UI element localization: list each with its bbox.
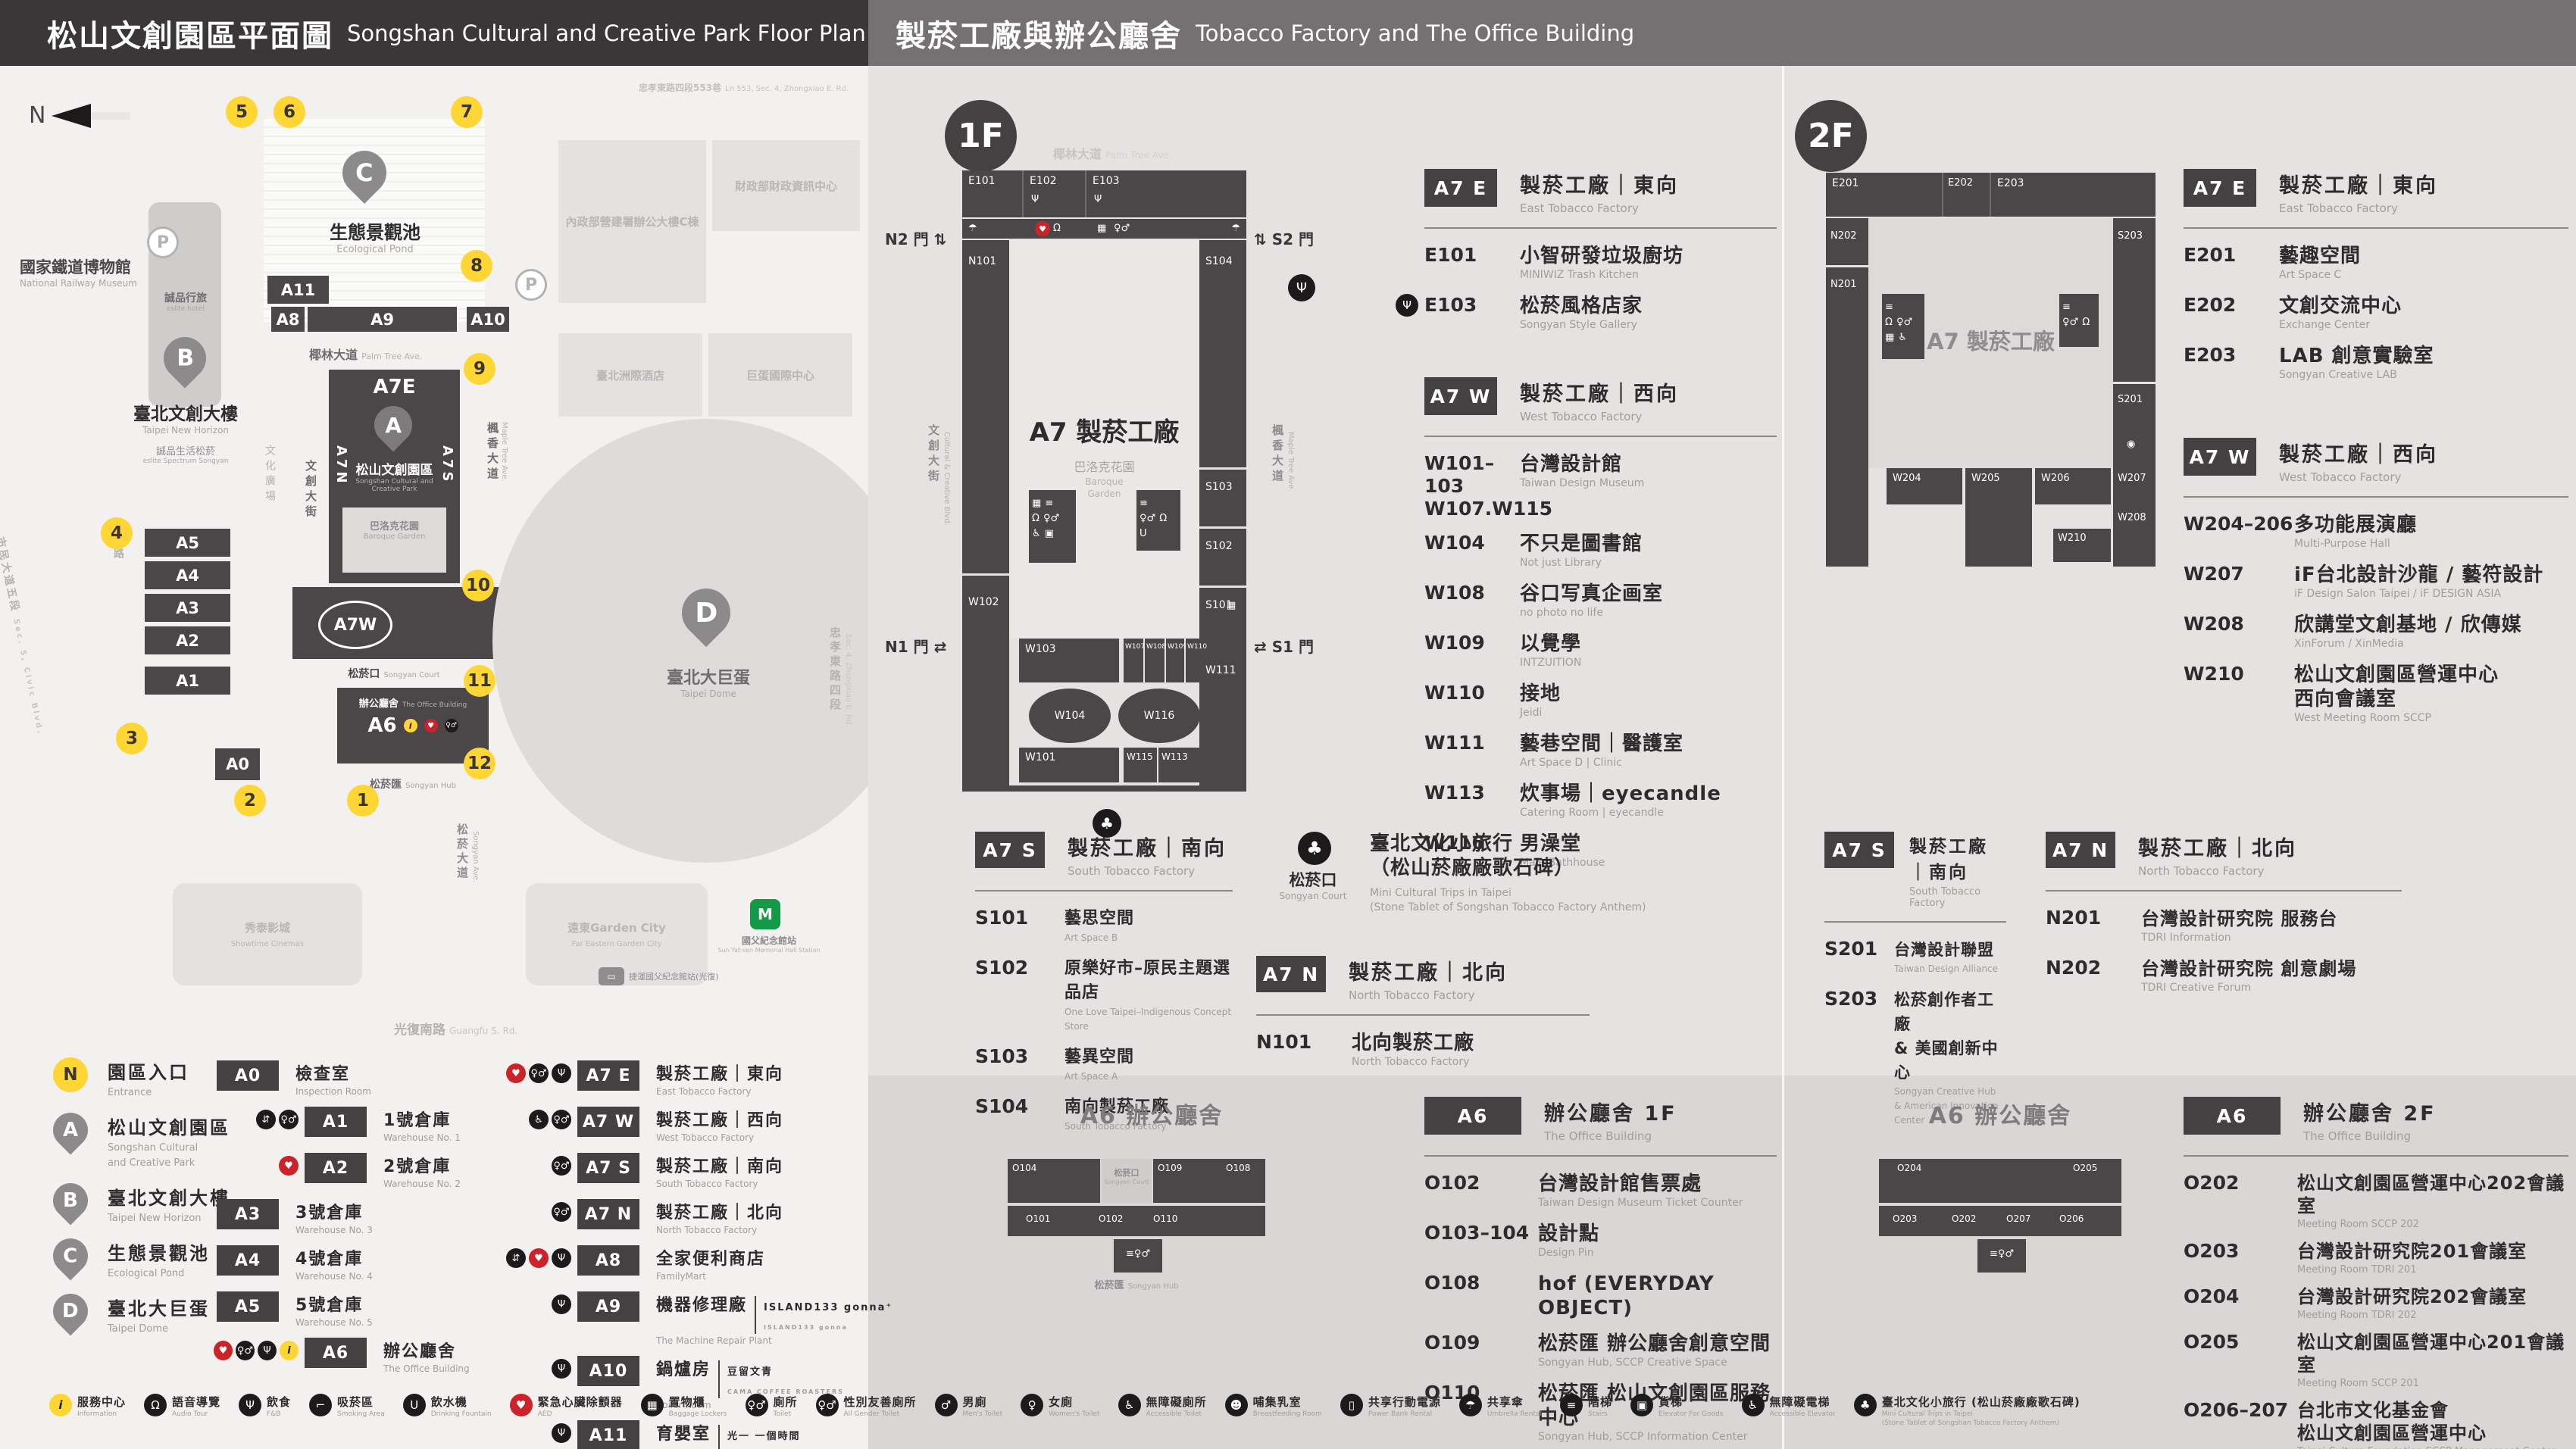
maple-ave-zh: 楓香大道 (486, 422, 499, 482)
room-separator (962, 573, 1009, 576)
room-w108-label: W108 (1146, 643, 1166, 651)
legend-pin-zh: 生態景觀池 (108, 1238, 210, 1265)
garden-city-en: Far Eastern Garden City (572, 940, 662, 948)
map-pin-icon: B (45, 1176, 95, 1225)
taipei-dome-shape (492, 419, 868, 863)
gate-1-label: 1 (357, 791, 369, 810)
plan1-maple-zh: 楓香大道 (1271, 424, 1284, 485)
elevator-icon: ⇵ (506, 1248, 526, 1268)
plan1-corridor: ☂ ♥ Ω ▦ ♀♂ ☂ (962, 219, 1246, 239)
footer-item-en2: (Stone Tablet of Songshan Tobacco Factor… (1882, 1419, 2080, 1428)
row-en: Songyan Creative LAB (2279, 368, 2568, 383)
row-name: 藝思空間 Art Space B (1064, 907, 1233, 945)
row-name: 北向製菸工廠 North Tobacco Factory (1352, 1031, 1680, 1070)
new-horizon-en: Taipei New Horizon (98, 425, 273, 436)
row-code: O102 (1424, 1172, 1538, 1210)
row-zh: 藝異空間 (1064, 1045, 1233, 1070)
legend-en: FamilyMart (656, 1271, 765, 1282)
directory-row: W104 不只是圖書館 Not just Library (1424, 532, 1777, 570)
dir-1f-north: A7 N 製菸工廠｜北向 North Tobacco Factory N101 … (1256, 956, 1680, 1081)
legend-pin-name: 園區入口 Entrance (108, 1057, 189, 1099)
dir-2f-north-list: N201 台灣設計研究院 服務台 TDRI Information N202 台… (2046, 907, 2531, 995)
left-title-en: Songshan Cultural and Creative Park Floo… (347, 20, 866, 46)
info-icon: i (280, 1341, 299, 1360)
footer-item: ♿ 無障礙廁所 Accessible Toilet (1118, 1394, 1207, 1419)
footer-item: Ω 語音導覽 Audio Tour (144, 1394, 220, 1419)
room-w207-label: W207 (2118, 473, 2146, 484)
stairs-icon: ≡ (1990, 1248, 1998, 1260)
bus-stop-label: 捷運國父紀念館站(光復) (629, 970, 719, 982)
dir-badge: A7 E (2184, 169, 2256, 207)
row-code-1: S201 (1824, 938, 1894, 960)
row-code: O203 (2184, 1240, 2297, 1277)
hotel-label: 臺北洲際酒店 (596, 367, 664, 383)
row-name: 台灣設計館 Taiwan Design Museum (1520, 452, 1777, 520)
row-code: W111 (1424, 732, 1520, 770)
footer-item-zh: 女廁 (1049, 1394, 1099, 1410)
stairs-icon: ≡ (2062, 301, 2071, 314)
floor-2f-badge-label: 2F (1808, 117, 1854, 155)
court-desc-zh: 臺北文化小旅行 (1370, 832, 1646, 856)
legend-name: 全家便利商店 FamilyMart (656, 1245, 765, 1282)
locker-icon: ▦ (1227, 599, 1236, 612)
row-en: Art Space C (2279, 268, 2568, 283)
footer-item-zh: 飲食 (267, 1394, 291, 1410)
row-name: 以覺學 INTZUITION (1520, 632, 1777, 670)
gate-10: 10 (462, 570, 494, 601)
legend-pin-row: N 園區入口 Entrance (53, 1057, 230, 1099)
park-name-en2: Creative Park (329, 486, 460, 493)
legend-brand: ISLAND133 gonna⁺ ISLAND133 gonna (755, 1296, 893, 1334)
row-zh2: & 美國創新中心 (1894, 1036, 2006, 1085)
room-w101-label: W101 (1025, 751, 1056, 764)
bus-icon: ▭ (599, 967, 624, 985)
zhongxiao-label: 忠孝東路四段 (827, 626, 843, 713)
row-name: hof (EVERYDAY OBJECT) (1538, 1272, 1777, 1320)
mrt-zh: 國父紀念館站 (705, 934, 833, 947)
building-a7e-label: A7E (329, 376, 460, 398)
row-zh: 松菸匯 辦公廳舍創意空間 (1538, 1332, 1777, 1356)
row-code: N101 (1256, 1031, 1352, 1070)
a6-2f-plan-title: A6 辦公廳舍 (1894, 1097, 2106, 1130)
row-icon: Ψ (1396, 294, 1418, 317)
row-code-2: W107.W115 (1424, 498, 1520, 520)
room-s201-label: S201 (2118, 394, 2143, 405)
goods-elevator-icon: ▣ (1045, 527, 1054, 540)
legend-en: Warehouse No. 1 (383, 1132, 461, 1143)
guangfu-label: 光復南路 Guangfu S. Rd. (394, 1019, 517, 1038)
footer-item-zh: 廁所 (774, 1394, 798, 1410)
footer-item-icon: U (403, 1394, 426, 1416)
legend-pin-row: C 生態景觀池 Ecological Pond (53, 1238, 230, 1280)
room-e101: E101 (962, 170, 1020, 217)
building-a0: A0 (215, 748, 260, 780)
room-e103: E103Ψ (1085, 170, 1246, 217)
row-name: 原樂好市–原民主題選品店 One Love Taipei–Indigenous … (1064, 957, 1233, 1034)
room-w115-label: W115 (1127, 751, 1153, 762)
park-map: N 忠孝東路四段553巷 Ln 553, Sec. 4, Zhongxiao E… (0, 66, 868, 1055)
accessible-icon: ♿ (1032, 527, 1041, 540)
row-en: Exchange Center (2279, 318, 2568, 333)
audio-icon: Ω (1159, 512, 1167, 525)
footer-item-icon: ▦ (641, 1394, 664, 1416)
legend-en: Warehouse No. 5 (295, 1317, 373, 1328)
row-code: S101 (975, 907, 1064, 945)
row-code: S201 (1824, 938, 1894, 976)
row-name: 台灣設計研究院202會議室 Meeting Room TDRI 202 (2297, 1285, 2568, 1323)
row-code: O109 (1424, 1332, 1538, 1370)
footer-item-en: Accessible Elevator (1770, 1410, 1836, 1419)
legend-row: Ψ A9 機器修理廠 ISLAND133 gonna⁺ ISLAND133 go… (483, 1291, 893, 1346)
building-a9-label: A9 (370, 311, 394, 329)
row-zh: 松菸風格店家 (1520, 294, 1777, 318)
row-zh: 台灣設計研究院201會議室 (2297, 1240, 2568, 1263)
room-w204-label: W204 (1893, 473, 1921, 484)
legend-badge: A9 (577, 1291, 639, 1322)
parking-icon-2: P (515, 269, 547, 301)
aed-icon: ♥ (424, 719, 438, 732)
dir-head-zh: 製菸工廠｜東向 (1520, 169, 1679, 198)
gate-s2-label: ⇅ S2 門 (1254, 227, 1314, 249)
a6-2f-plan: O204 O205 O203 O202 O207 O206 ≡♀♂ (1879, 1136, 2121, 1295)
room-e102-label: E102 (1030, 175, 1057, 187)
compass: N (29, 102, 130, 129)
legend-zh: 4號倉庫 (295, 1245, 363, 1269)
baroque-garden-patch: 巴洛克花園 Baroque Garden (342, 507, 446, 573)
legend-brand-zh: 光一 一個時間 (727, 1431, 801, 1442)
room-separator (1199, 586, 1246, 588)
legend-en: Warehouse No. 3 (295, 1225, 373, 1235)
a6room-o206-label: O206 (2059, 1213, 2084, 1224)
legend-zh: 製菸工廠｜東向 (656, 1060, 783, 1085)
gate-7: 7 (451, 96, 483, 128)
court-desc: 臺北文化小旅行 （松山菸廠廠歌石碑） Mini Cultural Trips i… (1370, 832, 1646, 915)
legend-pin-row: B 臺北文創大樓 Taipei New Horizon (53, 1183, 230, 1225)
court-zh: 松菸口 (1256, 868, 1370, 891)
left-header: 松山文創園區平面圖 Songshan Cultural and Creative… (0, 0, 868, 66)
directory-row: W101–103W107.W115 台灣設計館 Taiwan Design Mu… (1424, 452, 1777, 520)
legend-en: Warehouse No. 4 (295, 1271, 373, 1282)
plan1-maple-en: Maple Tree Ave. (1286, 432, 1295, 492)
gate-2-label: 2 (244, 791, 256, 810)
legend-row-icons: ⇵♥Ψ (483, 1245, 571, 1268)
a6-2f-top-row: O204 O205 (1879, 1159, 2121, 1203)
info-icon: i (404, 719, 417, 732)
room-s103-label: S103 (1205, 481, 1233, 493)
legend-name: 4號倉庫 Warehouse No. 4 (295, 1245, 373, 1282)
row-zh: 谷口写真企画室 (1520, 582, 1777, 606)
railway-museum-label: 國家鐵道博物館 National Railway Museum (20, 255, 137, 289)
legend-pin-en: Taipei Dome (108, 1323, 210, 1335)
legend-zh: 全家便利商店 (656, 1245, 765, 1269)
room-w110-label: W110 (1187, 643, 1207, 651)
dir-1f-west: A7 W 製菸工廠｜西向 West Tobacco Factory W101–1… (1424, 377, 1777, 882)
row-name: 藝趣空間 Art Space C (2279, 244, 2568, 283)
footer-item-zh: 男廁 (963, 1394, 1003, 1410)
dir-badge: A7 N (2046, 832, 2115, 868)
panel-divider (1782, 66, 1784, 1449)
plan1-center-label: A7 製菸工廠 (1009, 411, 1199, 448)
legend-brand: 豆留文青 CAMA COFFEE ROASTERS (718, 1360, 844, 1398)
divider (2184, 1155, 2568, 1157)
access-icon: ♿ (529, 1110, 549, 1129)
civic-zh: 市民大道五段 (0, 536, 21, 614)
legend-name: 辦公廳舍 The Office Building (383, 1338, 470, 1374)
dir-head-en: South Tobacco Factory (1068, 864, 1227, 878)
guangfu-en: Guangfu S. Rd. (449, 1026, 517, 1036)
footer-item-icon: i (49, 1394, 72, 1416)
legend-name: 製菸工廠｜北向 North Tobacco Factory (656, 1199, 783, 1235)
a6-court-gap: 松菸口 Songyan Court (1102, 1159, 1152, 1203)
footer-item: ▦ 置物櫃 Baggage Lockers (641, 1394, 727, 1419)
row-zh: 台灣設計館售票處 (1538, 1172, 1777, 1196)
legend-name: 機器修理廠 ISLAND133 gonna⁺ ISLAND133 gonna T… (656, 1291, 893, 1346)
row-code: W109 (1424, 632, 1520, 670)
dir-head-zh: 製菸工廠｜北向 (2138, 832, 2297, 861)
songyan-ave-en: Songyan Ave. (471, 831, 480, 882)
building-a8: A8 (271, 307, 305, 332)
songyan-ave-en-label: Songyan Ave. (471, 831, 480, 882)
legend-badge: A1 (305, 1107, 367, 1137)
footer-item-zh: 置物櫃 (669, 1394, 727, 1410)
gate-12: 12 (464, 748, 496, 779)
legend-badge: A10 (577, 1356, 639, 1386)
metro-logo-icon: M (750, 899, 780, 929)
directory-row: W210 松山文創園區營運中心 西向會議室 West Meeting Room … (2184, 663, 2568, 726)
elevator-icon: ⇵ (256, 1110, 276, 1129)
footer-item-zh: 哺集乳室 (1253, 1394, 1322, 1410)
room-n202-label: N202 (1830, 230, 1857, 242)
row-code-1: O205 (2184, 1331, 2297, 1354)
zhongxiao-zh: 忠孝東路四段 (828, 626, 842, 713)
plan1-top-bar: E101 E102Ψ E103Ψ (962, 170, 1246, 217)
legend-zh-line: 1號倉庫 (383, 1107, 461, 1131)
directory-row: E203 LAB 創意實驗室 Songyan Creative LAB (2184, 344, 2568, 383)
plan1-blvd-zh: 文創大街 (927, 424, 940, 485)
row-en: Design Pin (1538, 1246, 1777, 1260)
room-w103: W103 (1019, 639, 1119, 682)
room-e101-label: E101 (968, 175, 996, 187)
cinema-zh: 秀泰影城 (245, 921, 290, 935)
directory-row: W111 藝巷空間｜醫護室 Art Space D | Clinic (1424, 732, 1777, 770)
dir-head-en: West Tobacco Factory (1520, 410, 1679, 423)
a6-1f-plan-title-text: A6 辦公廳舍 (1080, 1103, 1224, 1129)
row-code-1: O203 (2184, 1240, 2297, 1263)
row-code-1: W111 (1424, 732, 1520, 754)
stairs-icon: ≡ (1126, 1248, 1134, 1260)
row-code-1: O108 (1424, 1272, 1538, 1294)
footer-item-zh: 性別友善廁所 (844, 1394, 917, 1410)
divider (975, 890, 1233, 892)
row-zh: 欣講堂文創基地 / 欣傳媒 (2294, 613, 2568, 637)
row-code: W208 (2184, 613, 2294, 651)
court-desc-zh2: （松山菸廠廠歌石碑） (1370, 856, 1646, 880)
gate-3-label: 3 (126, 729, 138, 748)
room-w207: W207 (2113, 468, 2156, 504)
new-horizon-zh: 臺北文創大樓 (98, 399, 273, 425)
row-code-1: E101 (1424, 244, 1520, 267)
plan1-blvd-en: Cultural & Creative Blvd. (943, 432, 951, 526)
eslite-mall-zh: 誠品生活松菸 (98, 443, 273, 457)
aed-icon: ♥ (214, 1341, 233, 1360)
row-en: Art Space D | Clinic (1520, 756, 1777, 770)
aed-icon: ♥ (506, 1063, 526, 1083)
footer-item-text: 共享傘 Umbrella Rental (1487, 1394, 1542, 1419)
gate-s2-text: S2 門 (1272, 230, 1314, 248)
songyan-court-zh: 松菸口 (348, 668, 380, 680)
row-zh: 台灣設計研究院202會議室 (2297, 1285, 2568, 1308)
footer-item-text: 置物櫃 Baggage Lockers (669, 1394, 727, 1419)
row-code: W101–103W107.W115 (1424, 452, 1520, 520)
row-en: no photo no life (1520, 606, 1777, 620)
footer-item-zh: 吸菸區 (337, 1394, 385, 1410)
garden-city-label: 遠東Garden CityFar Eastern Garden City (567, 920, 666, 949)
legend-row: ♥ A2 2號倉庫 Warehouse No. 2 (211, 1153, 470, 1189)
row-code: W210 (2184, 663, 2294, 726)
room-w116-label: W116 (1144, 710, 1175, 722)
row-zh: 多功能展演廳 (2294, 513, 2568, 537)
a6-hub-en: Songyan Hub (1128, 1282, 1179, 1291)
dir-1f-east-head: A7 E 製菸工廠｜東向 East Tobacco Factory (1424, 169, 1777, 215)
dir-2f-west-list: W204–206 多功能展演廳 Multi-Purpose Hall W207 … (2184, 513, 2568, 726)
footer-item-icon: ☂ (1459, 1394, 1482, 1416)
footer-item: ⌐ 吸菸區 Smoking Area (309, 1394, 385, 1419)
food-icon: Ψ (258, 1341, 277, 1360)
legend-zh-line: 辦公廳舍 (383, 1338, 470, 1362)
legend-brand: 光一 一個時間 GUANG YI IN TIME (718, 1425, 813, 1449)
room-w107-label: W107 (1125, 643, 1145, 651)
row-name: 多功能展演廳 Multi-Purpose Hall (2294, 513, 2568, 551)
toilet-icon: ♀♂ (552, 1202, 571, 1222)
taipei-dome-zh: 臺北大巨蛋 (629, 664, 788, 689)
a6-2f-bottom-row: O203 O202 O207 O206 (1879, 1206, 2121, 1236)
legend-pin-zh: 臺北大巨蛋 (108, 1294, 210, 1320)
row-name: 不只是圖書館 Not just Library (1520, 532, 1777, 570)
building-a11-label: A11 (281, 281, 315, 299)
row-zh: 台灣設計館 (1520, 452, 1777, 476)
legend-zh-line: 機器修理廠 ISLAND133 gonna⁺ ISLAND133 gonna (656, 1291, 893, 1334)
footer-item-icon: ♥ (510, 1394, 533, 1416)
legend-pin-row: D 臺北大巨蛋 Taipei Dome (53, 1294, 230, 1335)
row-code-1: E203 (2184, 344, 2279, 367)
room-w205: W205 (1965, 468, 2032, 567)
footer-item-text: 無障礙廁所 Accessible Toilet (1146, 1394, 1207, 1419)
footer-item-en: Baggage Lockers (669, 1410, 727, 1419)
row-code-1: W108 (1424, 582, 1520, 604)
right-title-zh: 製菸工廠與辦公廳舍 (896, 11, 1182, 55)
footer-item-en: Mini Cultural Trips in Taipei (1882, 1410, 2080, 1419)
plan1-maple-en-label: Maple Tree Ave. (1286, 432, 1295, 492)
room-w208: W208 (2113, 507, 2156, 544)
room-w104-label: W104 (1055, 710, 1086, 722)
gov-building-1: 內政部營建署辦公大樓C棟 (558, 140, 706, 303)
toilet-icon: ♀♂ (1140, 512, 1155, 525)
legend-zh-line: 2號倉庫 (383, 1153, 461, 1177)
row-code-1: W110 (1424, 682, 1520, 704)
building-a4: A4 (145, 561, 230, 589)
row-zh: 松山文創園區營運中心201會議室 (2297, 1331, 2568, 1376)
row-zh: iF台北設計沙龍 / 藝符設計 (2294, 563, 2568, 587)
row-name: 小智研發垃圾廚坊 MINIWIZ Trash Kitchen (1520, 244, 1777, 283)
a6room-o104: O104 (1008, 1159, 1100, 1203)
row-zh: 接地 (1520, 682, 1777, 706)
maple-ave-en-label: Maple Tree Ave. (500, 422, 508, 482)
toilet-icon: ♀♂ (279, 1110, 299, 1129)
footer-item-en: Breastfeeding Room (1253, 1410, 1322, 1419)
legend-name: 檢查室 Inspection Room (295, 1060, 371, 1097)
dir-1f-west-list: W101–103W107.W115 台灣設計館 Taiwan Design Mu… (1424, 452, 1777, 870)
divider (2184, 496, 2568, 498)
row-zh: 台灣設計研究院 創意劇場 (2141, 957, 2531, 981)
row-name: 谷口写真企画室 no photo no life (1520, 582, 1777, 620)
row-en: West Meeting Room SCCP (2294, 711, 2568, 726)
row-en: iF Design Salon Taipei / iF DESIGN ASIA (2294, 587, 2568, 601)
lane-zh: 忠孝東路四段553巷 (639, 83, 721, 93)
baroque-en: Baroque Garden (342, 532, 446, 541)
dir-1f-north-head: A7 N 製菸工廠｜北向 North Tobacco Factory (1256, 956, 1680, 1002)
legend-zh: 檢查室 (295, 1060, 350, 1085)
gov-building-1-label: 內政部營建署辦公大樓C棟 (565, 214, 699, 230)
footer-item-icon: Ψ (239, 1394, 261, 1416)
legend-badge: A6 (305, 1338, 367, 1368)
legend-row: ♿♀♂ A7 W 製菸工廠｜西向 West Tobacco Factory (483, 1107, 893, 1143)
camera-icon: ◉ (2127, 438, 2135, 451)
toilet-icon: ♀♂ (1043, 512, 1059, 525)
divider (2046, 890, 2402, 892)
row-en: Songyan Hub, SCCP Information Center (1538, 1430, 1777, 1444)
row-zh: 藝趣空間 (2279, 244, 2568, 268)
footer-item-text: 吸菸區 Smoking Area (337, 1394, 385, 1419)
room-w111-label: W111 (1205, 664, 1236, 676)
directory-row: W208 欣講堂文創基地 / 欣傳媒 XinForum / XinMedia (2184, 613, 2568, 651)
eslite-mall-en: eslite Spectrum Songyan (98, 457, 273, 465)
eslite-hotel-en: eslite hotel (129, 305, 242, 313)
room-e201: E201 (1826, 173, 1940, 217)
row-en: Taiwan Design Museum (1520, 476, 1777, 491)
legend-badge: A5 (217, 1291, 279, 1322)
building-a5: A5 (145, 529, 230, 557)
footer-item-en: Umbrella Rental (1487, 1410, 1542, 1419)
legend-badge: A3 (217, 1199, 279, 1229)
row-zh: 小智研發垃圾廚坊 (1520, 244, 1777, 268)
building-a3-label: A3 (176, 599, 199, 617)
footer-item-text: 女廁 Women's Toilet (1049, 1394, 1099, 1419)
footer-item-zh: 共享傘 (1487, 1394, 1542, 1410)
bus-stop: ▭ 捷運國父紀念館站(光復) (599, 967, 719, 985)
plan2-top-bar: E201 E202 E203 (1826, 173, 2156, 217)
dir-head-en: West Tobacco Factory (2279, 470, 2438, 484)
gate-3: 3 (116, 723, 148, 754)
toilet-icon: ♀♂ (552, 1110, 571, 1129)
room-w109-label: W109 (1168, 643, 1187, 651)
footer-item-icon: ♿ (1742, 1394, 1765, 1416)
footer-item-icon: ☻ (1225, 1394, 1248, 1416)
footer-item-icon: ♀ (1021, 1394, 1043, 1416)
row-code: W204–206 (2184, 513, 2294, 551)
row-en: Songyan Hub, SCCP Creative Space (1538, 1356, 1777, 1370)
room-n101-label: N101 (968, 255, 996, 267)
footer-item-icon: ⌐ (309, 1394, 332, 1416)
legend-name: 2號倉庫 Warehouse No. 2 (383, 1153, 461, 1189)
row-name: 藝異空間 Art Space A (1064, 1045, 1233, 1084)
floor-2f-badge: 2F (1795, 100, 1867, 172)
cultural-blvd-label: 文創大街 (303, 460, 319, 520)
legend-badge: A2 (305, 1153, 367, 1183)
zhongxiao-en: Sec. 4, Zhongxiao E. Rd. (844, 634, 852, 726)
row-code: S203 (1824, 988, 1894, 1128)
row-name: 松山文創園區營運中心 西向會議室 West Meeting Room SCCP (2294, 663, 2568, 726)
toilet-icon: ♀♂ (1134, 1248, 1150, 1260)
